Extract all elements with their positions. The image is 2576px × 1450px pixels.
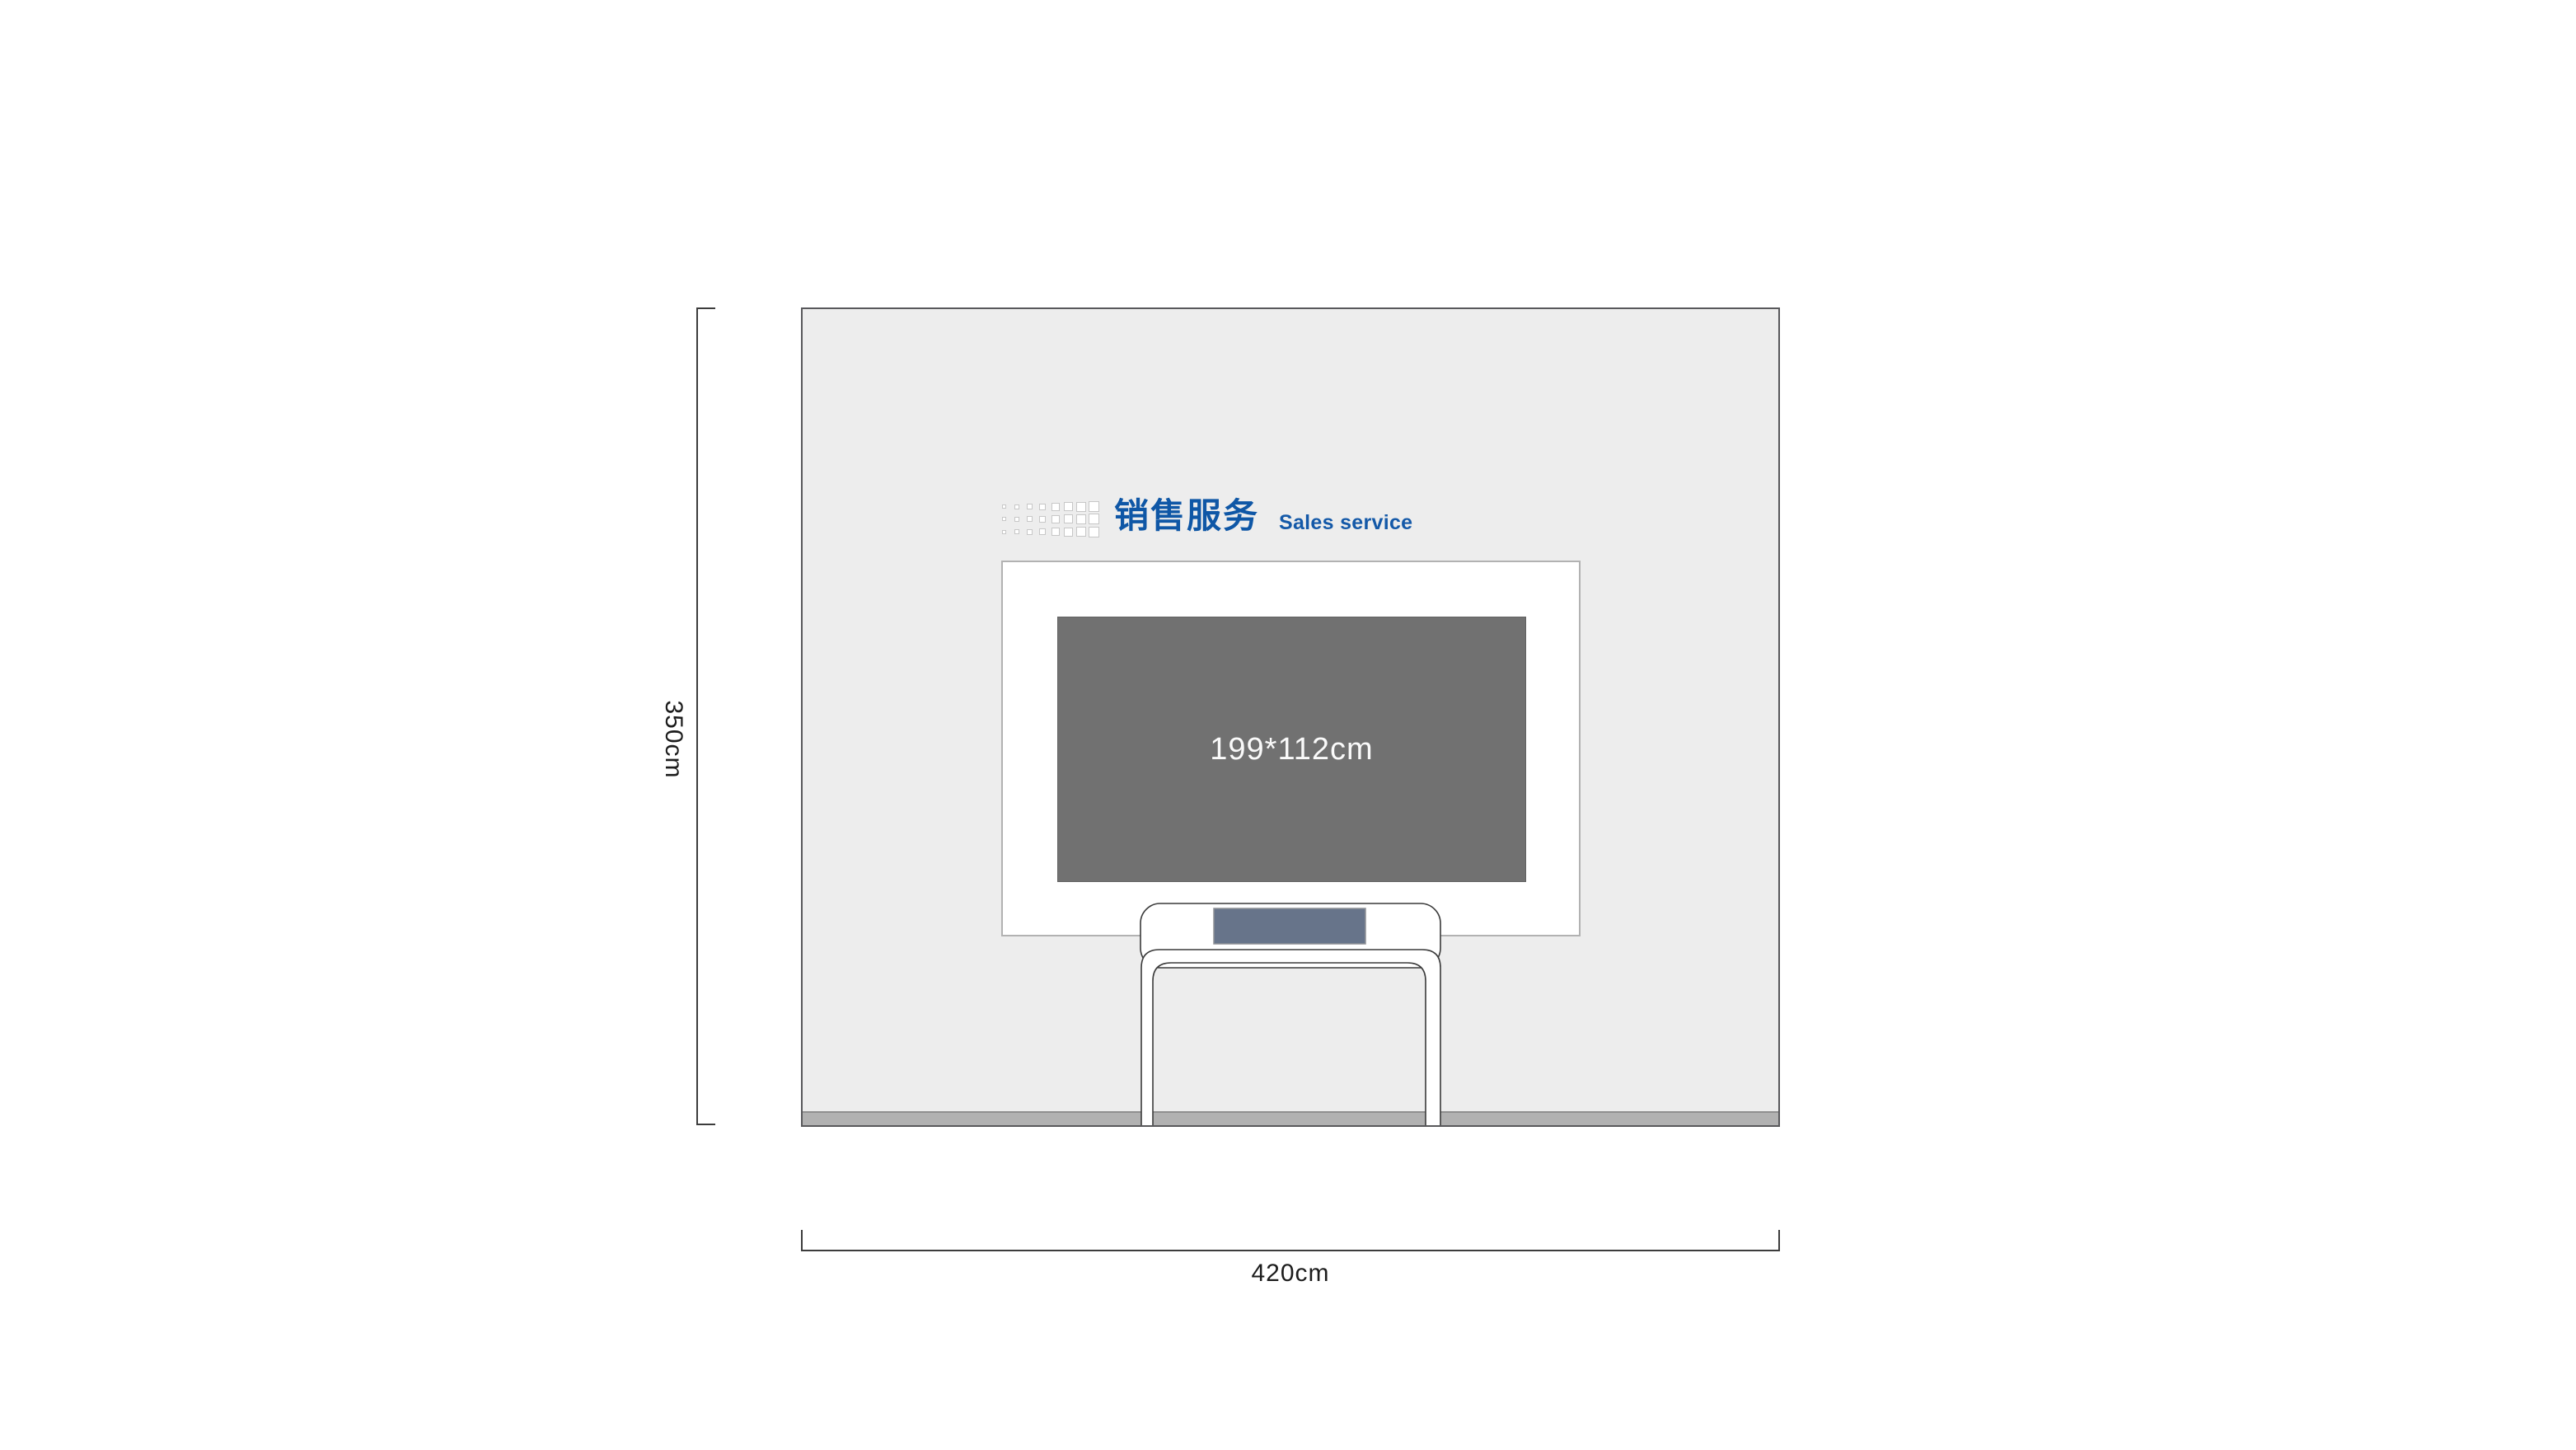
logo-dot-cell (1037, 513, 1050, 525)
logo-dot (1014, 504, 1019, 509)
width-dimension-line (801, 1250, 1780, 1251)
logo-dot-cell (1011, 500, 1024, 513)
logo-dot (1051, 503, 1060, 511)
logo-dot (1027, 504, 1033, 509)
logo-dot (1064, 528, 1073, 537)
logo-dot-cell (1011, 526, 1024, 538)
logo-dot-grid (998, 500, 1100, 538)
table-screen (1214, 908, 1365, 944)
width-dimension-tick-right (1778, 1230, 1780, 1251)
logo-dot-cell (1088, 513, 1101, 525)
logo-dot (1002, 530, 1006, 534)
logo-dot (1002, 517, 1006, 521)
logo-dot (1014, 517, 1019, 522)
logo-dot-cell (998, 513, 1011, 525)
logo-dot (1051, 515, 1060, 523)
logo-dot-cell (1062, 526, 1075, 538)
logo-dot (1051, 528, 1060, 536)
logo-dot-cell (998, 526, 1011, 538)
logo-dot-cell (1049, 500, 1062, 513)
display-size-label: 199*112cm (1210, 732, 1373, 767)
logo-dot-cell (1088, 500, 1101, 513)
logo-dot (1076, 514, 1086, 524)
logo-dot-cell (1062, 513, 1075, 525)
elevation-drawing: 销售服务 Sales service 199*112cm 350cm 420cm (0, 0, 2576, 1450)
logo-dot-cell (1037, 500, 1050, 513)
sign-board: 199*112cm (1001, 561, 1581, 936)
logo-dot-cell (1023, 526, 1037, 538)
width-dimension-label: 420cm (1251, 1260, 1329, 1288)
logo-dot-cell (998, 500, 1011, 513)
logo-dot (1076, 502, 1086, 512)
logo-dot (1039, 504, 1046, 510)
logo-dot-cell (1011, 513, 1024, 525)
display-panel: 199*112cm (1057, 617, 1526, 882)
logo-dot-cell (1037, 526, 1050, 538)
height-dimension-label: 350cm (659, 700, 687, 778)
heading-chinese: 销售服务 (1114, 499, 1259, 533)
heading-english: Sales service (1279, 513, 1412, 533)
logo-dot-cell (1023, 513, 1037, 525)
logo-dot (1014, 529, 1019, 534)
wall: 销售服务 Sales service 199*112cm (801, 307, 1780, 1127)
height-dimension-tick-top (696, 307, 715, 309)
width-dimension-tick-left (801, 1230, 803, 1251)
logo-dot (1089, 501, 1099, 512)
height-dimension-tick-bottom (696, 1124, 715, 1125)
logo-dot-cell (1023, 500, 1037, 513)
logo-dot-cell (1075, 500, 1088, 513)
logo-dot-cell (1075, 526, 1088, 538)
logo-dot (1027, 529, 1033, 535)
logo-dot (1076, 527, 1086, 537)
logo-dot (1089, 527, 1099, 537)
logo-dot (1039, 528, 1046, 535)
logo-dot-cell (1075, 513, 1088, 525)
logo-dot-cell (1049, 513, 1062, 525)
logo-dot-cell (1062, 500, 1075, 513)
logo-dot-cell (1088, 526, 1101, 538)
height-dimension-line (696, 307, 698, 1125)
logo-dot (1064, 502, 1073, 511)
logo-dot (1064, 514, 1073, 523)
logo-dot (1027, 516, 1033, 522)
logo-dot (1002, 504, 1006, 509)
logo-dot (1089, 514, 1099, 524)
console-table (1140, 903, 1442, 1125)
table-leg-frame (1141, 950, 1440, 1125)
logo-dot-cell (1049, 526, 1062, 538)
logo-dot (1039, 516, 1046, 523)
